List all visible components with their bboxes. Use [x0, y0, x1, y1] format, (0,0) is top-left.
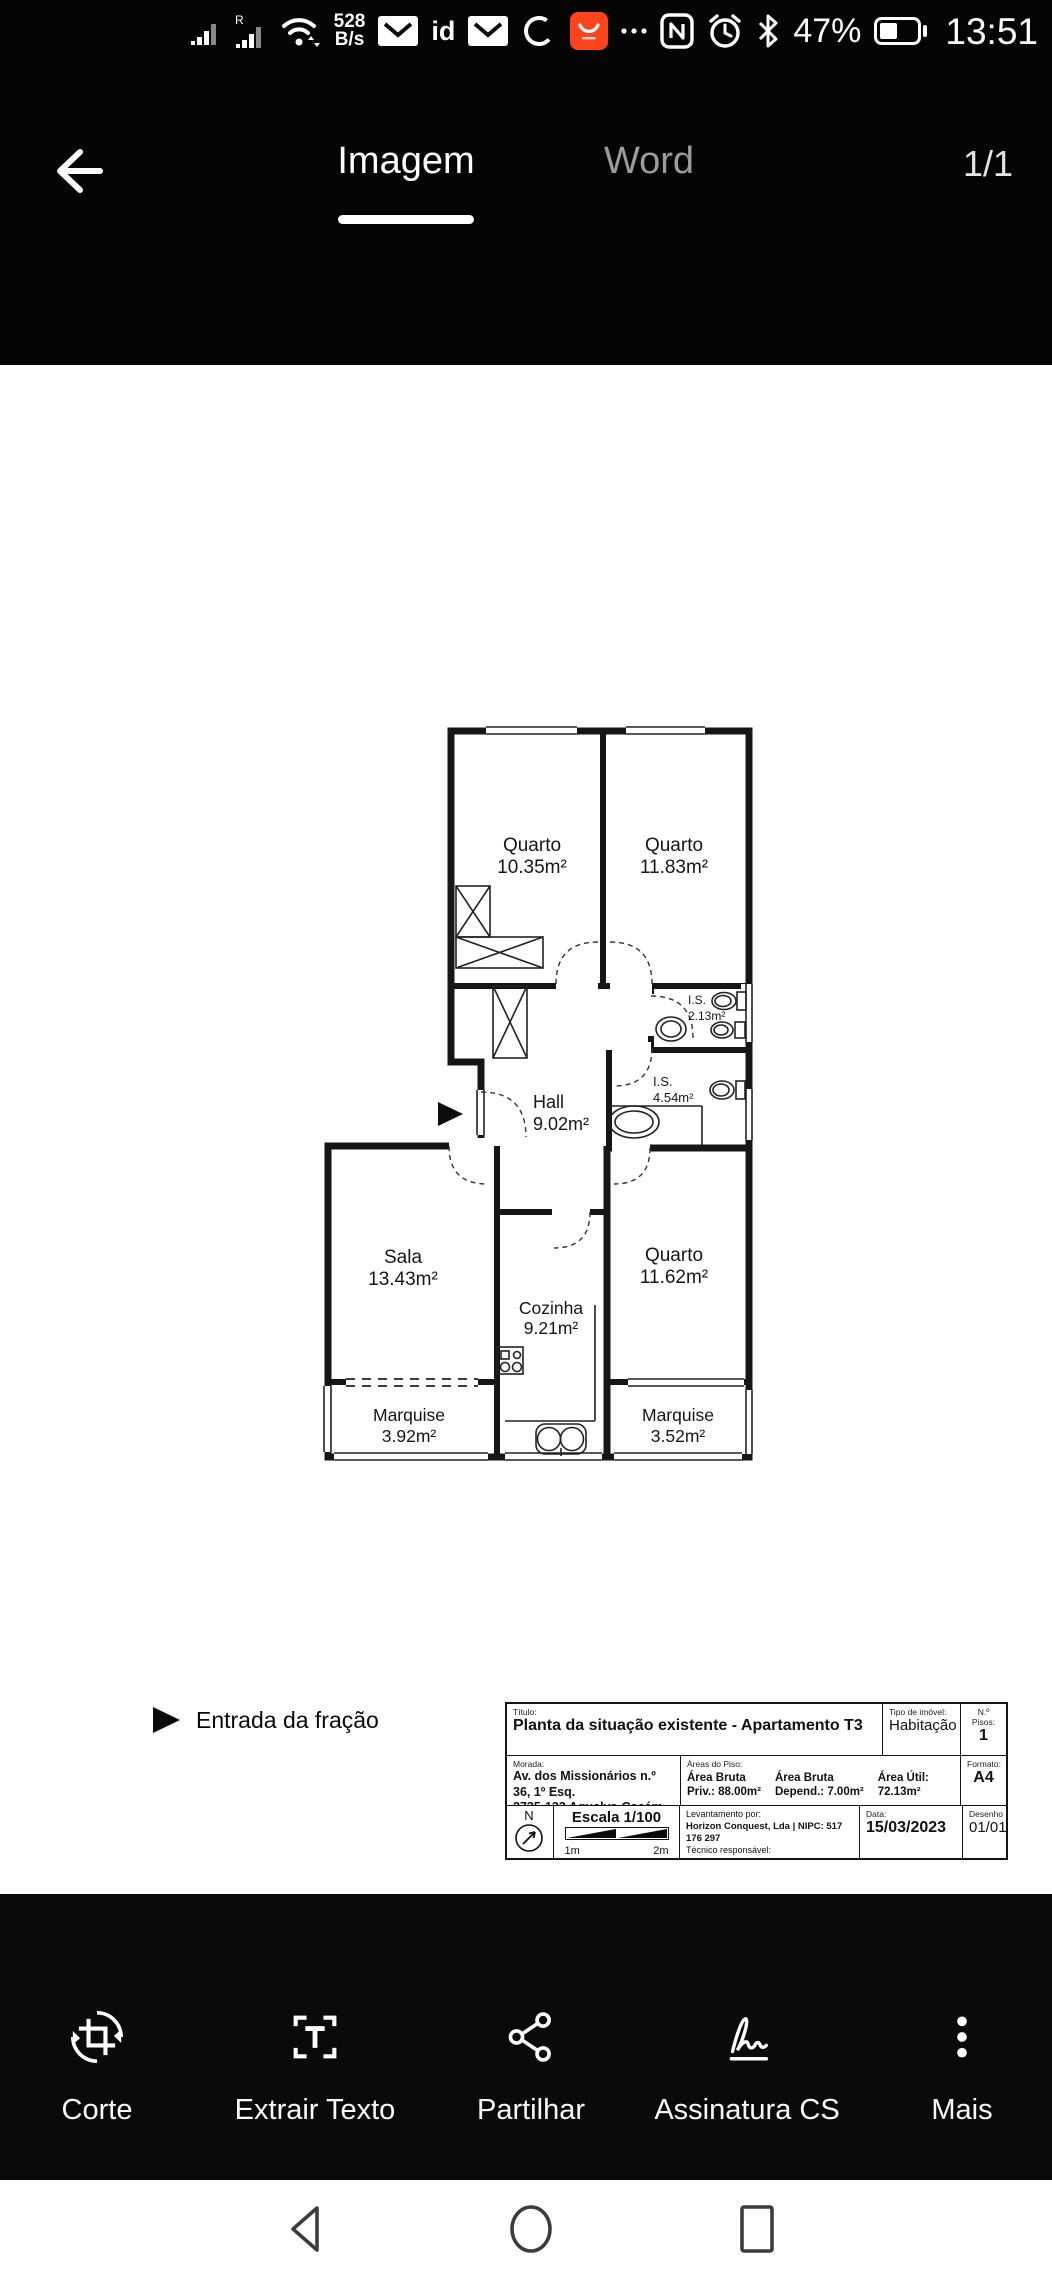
- share-icon: [502, 2008, 560, 2066]
- tab-word[interactable]: Word: [604, 140, 694, 183]
- tab-imagem-underline: [338, 215, 474, 224]
- mail-icon: [378, 16, 418, 46]
- north-cell: N: [507, 1806, 554, 1858]
- page-indicator: 1/1: [963, 143, 1013, 185]
- survey-cell: Levantamento por: Horizon Conquest, Lda …: [680, 1806, 860, 1858]
- floors-label: N.º Pisos:: [967, 1707, 1000, 1727]
- bathroom-fixtures: [609, 992, 746, 1145]
- wardrobe: [456, 886, 543, 1058]
- android-nav-bar: [0, 2180, 1052, 2276]
- network-speed-unit: B/s: [334, 31, 366, 49]
- room-area: 11.62m²: [640, 1267, 708, 1288]
- room-area: 13.43m²: [368, 1269, 438, 1290]
- room-label: Sala: [384, 1247, 422, 1268]
- scale-cell: Escala 1/100 1m 2m: [554, 1806, 680, 1858]
- scale-text: Escala 1/100: [572, 1809, 661, 1826]
- crop-button[interactable]: Corte: [0, 1912, 207, 2127]
- room-area: 11.83m²: [640, 857, 708, 878]
- survey-technician: Arq. Urb. Rúben Baptista: [686, 1857, 853, 1858]
- room-area: 3.52m²: [651, 1426, 706, 1446]
- signature-button[interactable]: Assinatura CS: [637, 1912, 857, 2127]
- extract-text-label: Extrair Texto: [235, 2094, 396, 2127]
- drawing-cell: Desenho 01/01: [963, 1806, 1006, 1858]
- crop-label: Corte: [62, 2094, 133, 2127]
- entrance-legend-label: Entrada da fração: [196, 1707, 379, 1734]
- areas-label: Áreas do Piso:: [687, 1759, 954, 1769]
- drawing-label: Desenho: [969, 1809, 1000, 1819]
- battery-percent: 47%: [793, 14, 861, 48]
- area-gross-private: Área Bruta Priv.: 88.00m²: [687, 1771, 761, 1800]
- survey-company: Horizon Conquest, Lda | NIPC: 517 176 29…: [686, 1821, 853, 1846]
- entrance-triangle-icon: [150, 1704, 182, 1736]
- entrance-arrow-icon: [438, 1102, 463, 1126]
- more-label: Mais: [931, 2094, 992, 2127]
- room-label: Quarto: [645, 1245, 703, 1266]
- signature-label: Assinatura CS: [654, 2094, 839, 2127]
- entrance-legend: Entrada da fração: [150, 1704, 379, 1736]
- bluetooth-icon: [756, 13, 780, 49]
- room-area: 4.54m²: [653, 1090, 694, 1105]
- room-label: Marquise: [642, 1405, 714, 1425]
- more-vertical-icon: [933, 2008, 991, 2066]
- property-type-label: Tipo de imóvel:: [889, 1707, 954, 1717]
- address-line1: Av. dos Missionários n.º 36, 1º Esq.: [513, 1769, 674, 1800]
- nav-recents-icon[interactable]: [737, 2204, 777, 2254]
- share-button[interactable]: Partilhar: [421, 1912, 641, 2127]
- share-label: Partilhar: [477, 2094, 585, 2127]
- aliexpress-badge-icon: [570, 12, 608, 50]
- title-cell: Título: Planta da situação existente - A…: [507, 1704, 883, 1755]
- tab-imagem[interactable]: Imagem: [337, 140, 474, 183]
- sync-icon: [521, 13, 557, 49]
- nav-back-icon[interactable]: [285, 2204, 325, 2254]
- signature-icon: [718, 2008, 776, 2066]
- svg-text:N: N: [524, 1808, 533, 1823]
- more-button[interactable]: Mais: [852, 1912, 1052, 2127]
- scale-bar: [565, 1827, 669, 1840]
- floors-cell: N.º Pisos: 1: [961, 1704, 1006, 1755]
- network-speed: 528 B/s: [334, 13, 366, 49]
- room-area: 2.13m²: [688, 1009, 725, 1023]
- room-area: 9.21m²: [524, 1318, 579, 1338]
- room-label: Quarto: [503, 835, 561, 856]
- back-button[interactable]: [44, 138, 110, 204]
- drawing-value: 01/01: [969, 1819, 1006, 1836]
- nfc-icon: [660, 13, 694, 49]
- floors-value: 1: [979, 1727, 988, 1744]
- title-label: Título:: [513, 1707, 876, 1717]
- room-label: Marquise: [373, 1405, 445, 1425]
- area-useful: Área Útil: 72.13m²: [878, 1771, 929, 1800]
- status-time: 13:51: [945, 13, 1038, 50]
- areas-cell: Áreas do Piso: Área Bruta Priv.: 88.00m²…: [681, 1756, 961, 1805]
- battery-icon: [874, 15, 928, 47]
- room-label: Cozinha: [519, 1298, 583, 1318]
- id-app-icon: id: [431, 18, 455, 45]
- room-area: 9.02m²: [533, 1114, 589, 1134]
- room-label: Quarto: [645, 835, 703, 856]
- date-cell: Data: 15/03/2023: [860, 1806, 963, 1858]
- signal-icon: [191, 15, 221, 47]
- signal-r-icon: R: [234, 12, 268, 50]
- bottom-toolbar: Corte Extrair Texto Partilhar Assinatu: [0, 1894, 1052, 2180]
- mail-icon: [468, 16, 508, 46]
- area-gross-dependent: Área Bruta Depend.: 7.00m²: [775, 1771, 864, 1800]
- app-header: R 528 B/s id: [0, 0, 1052, 365]
- crop-rotate-icon: [68, 2008, 126, 2066]
- date-label: Data:: [866, 1809, 956, 1819]
- extract-text-button[interactable]: Extrair Texto: [205, 1912, 425, 2127]
- document-image-view[interactable]: Quarto 10.35m² Quarto 11.83m² I.S. 2.13m…: [0, 365, 1052, 1894]
- address-line2: 2735-133 Agualva-Cacém, Sintra: [513, 1800, 674, 1805]
- extract-text-icon: [286, 2008, 344, 2066]
- format-cell: Formato: A4: [961, 1756, 1006, 1805]
- title-block: Título: Planta da situação existente - A…: [505, 1702, 1008, 1860]
- floor-plan: Quarto 10.35m² Quarto 11.83m² I.S. 2.13m…: [310, 710, 770, 1480]
- room-label: I.S.: [688, 993, 706, 1007]
- survey-technician-label: Técnico responsável:: [686, 1845, 853, 1857]
- overflow-dots-icon: [621, 25, 647, 37]
- scale-1m: 1m: [565, 1845, 580, 1857]
- property-type-cell: Tipo de imóvel: Habitação: [883, 1704, 961, 1755]
- survey-label: Levantamento por:: [686, 1809, 853, 1821]
- wifi-icon: [281, 13, 321, 49]
- room-area: 10.35m²: [497, 857, 567, 878]
- room-label: I.S.: [653, 1074, 673, 1089]
- sim2-badge: R: [235, 13, 244, 27]
- address-label: Morada:: [513, 1759, 674, 1769]
- scale-2m: 2m: [653, 1845, 668, 1857]
- format-value: A4: [973, 1769, 993, 1786]
- nav-home-icon[interactable]: [508, 2204, 554, 2254]
- phone-screen: R 528 B/s id: [0, 0, 1052, 2276]
- status-bar: R 528 B/s id: [0, 0, 1052, 62]
- plan-title: Planta da situação existente - Apartamen…: [513, 1717, 863, 1734]
- date-value: 15/03/2023: [866, 1819, 946, 1836]
- format-label: Formato:: [967, 1759, 1000, 1769]
- room-label: Hall: [533, 1092, 564, 1112]
- address-cell: Morada: Av. dos Missionários n.º 36, 1º …: [507, 1756, 681, 1805]
- room-area: 3.92m²: [382, 1426, 437, 1446]
- alarm-clock-icon: [707, 12, 743, 50]
- north-compass-icon: N: [508, 1807, 551, 1855]
- property-type-value: Habitação: [889, 1717, 957, 1734]
